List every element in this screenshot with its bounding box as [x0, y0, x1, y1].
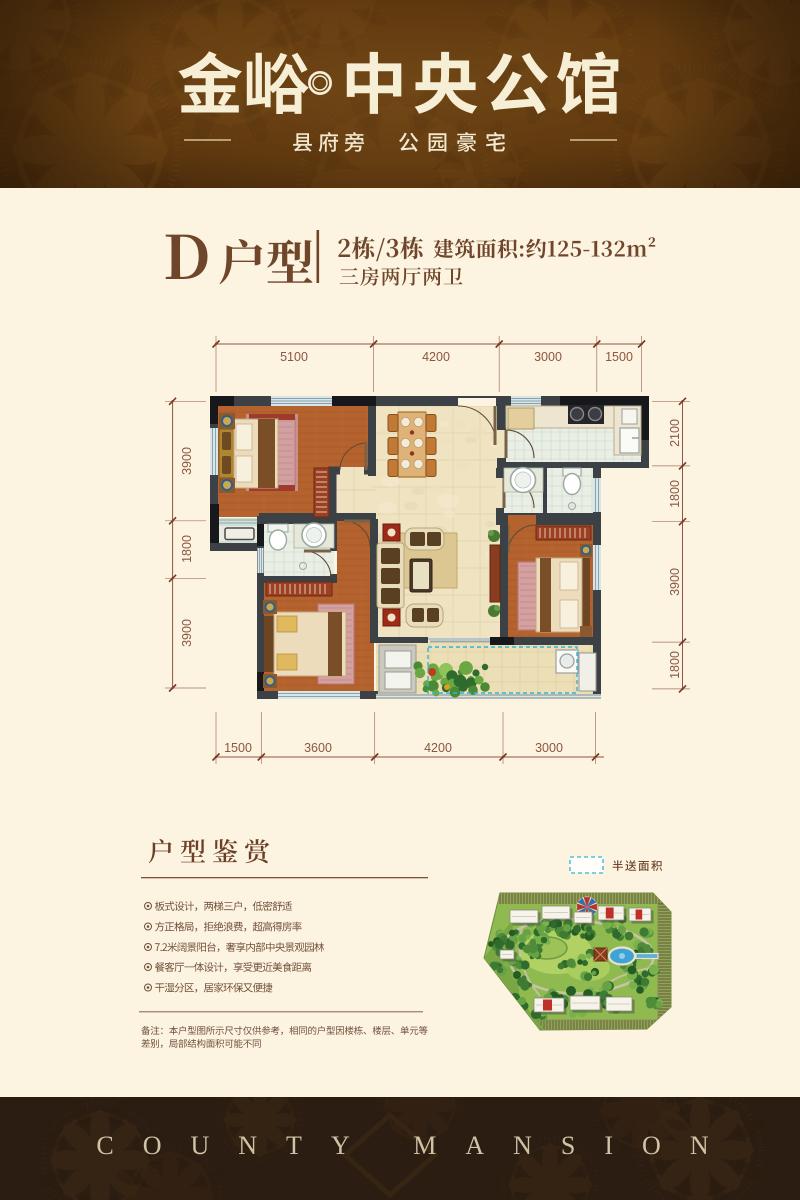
svg-text:3900: 3900: [180, 447, 194, 475]
svg-text:1800: 1800: [668, 651, 682, 679]
svg-text:3600: 3600: [304, 741, 332, 755]
svg-text:3900: 3900: [668, 568, 682, 596]
svg-text:3000: 3000: [534, 350, 562, 364]
svg-text:COUNTY MANSION: COUNTY MANSION: [96, 1131, 737, 1160]
svg-text:4200: 4200: [422, 350, 450, 364]
svg-text:5100: 5100: [280, 350, 308, 364]
svg-text:3000: 3000: [535, 741, 563, 755]
svg-text:1500: 1500: [224, 741, 252, 755]
svg-text:4200: 4200: [424, 741, 452, 755]
svg-text:1800: 1800: [668, 480, 682, 508]
svg-text:1500: 1500: [605, 350, 633, 364]
svg-text:1800: 1800: [180, 535, 194, 563]
svg-text:2100: 2100: [668, 419, 682, 447]
svg-text:3900: 3900: [180, 619, 194, 647]
